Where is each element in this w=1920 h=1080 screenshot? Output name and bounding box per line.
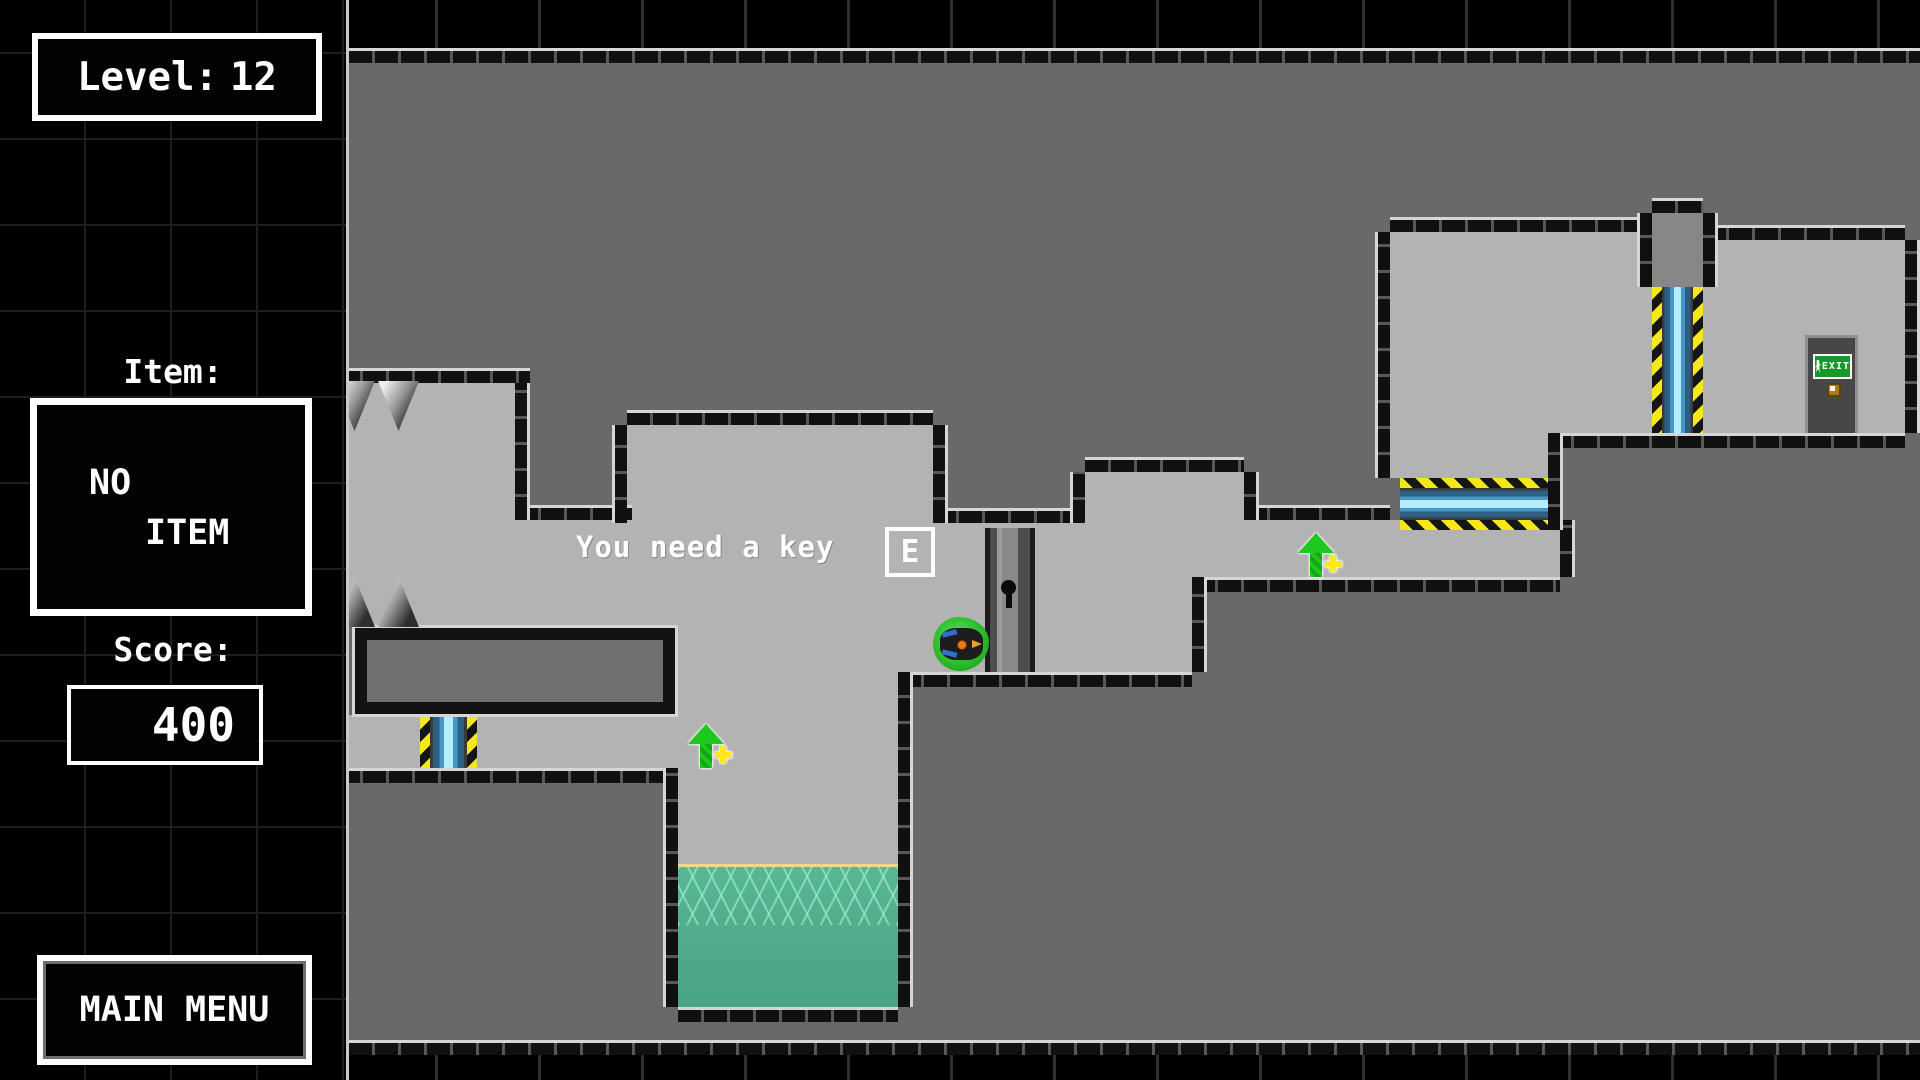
laser-beam: [430, 717, 467, 768]
floor-trim: [1548, 433, 1905, 448]
wall-trim: [1244, 505, 1390, 520]
wall-trim: [1070, 472, 1085, 523]
bottom-frame-rail: [349, 1040, 1920, 1055]
wall-trim: [1652, 198, 1703, 213]
item-box: NO ITEM: [30, 398, 312, 616]
wall-trim: [1905, 240, 1920, 433]
laser-channel: [1652, 213, 1703, 287]
player-detail: [972, 640, 982, 648]
wall-trim: [1637, 213, 1652, 287]
keyhole-icon: [1001, 580, 1016, 595]
game-window: EXIT You need a key E Level: 12 I: [0, 0, 1920, 1080]
wall-trim: [1375, 232, 1390, 478]
item-value-line2: ITEM: [145, 513, 229, 553]
plus-icon: [720, 746, 726, 763]
room-topright-lower: [1390, 433, 1548, 478]
laser-beam: [1400, 488, 1548, 520]
level-label: Level:: [77, 55, 218, 100]
player-sprite: [940, 628, 983, 660]
hazard-stripe-icon: [1693, 287, 1703, 433]
item-value-line1: NO: [89, 463, 131, 503]
laser-barrier-small: [420, 717, 477, 768]
hazard-stripe-icon: [467, 717, 477, 768]
wall-trim: [337, 368, 530, 383]
wall-trim: [1244, 472, 1259, 520]
exit-sign: EXIT: [1813, 354, 1852, 379]
exit-door: EXIT: [1805, 335, 1858, 433]
wall-trim: [898, 672, 913, 1007]
wall-trim: [612, 425, 627, 523]
main-menu-label: MAIN MENU: [80, 990, 270, 1030]
door-handle-icon: [1827, 383, 1841, 397]
room-left: [337, 383, 530, 626]
floor-trim: [1192, 577, 1560, 592]
wall-trim: [1703, 225, 1905, 240]
wall-trim: [933, 508, 1085, 523]
corridor-lower-left: [337, 715, 678, 768]
room-central-upper: [627, 425, 933, 523]
exit-sign-label: EXIT: [1822, 361, 1850, 372]
wall-trim: [663, 768, 678, 1007]
key-prompt-letter: E: [901, 534, 920, 570]
locked-door: [985, 528, 1035, 672]
hazard-stripe-icon: [1652, 287, 1662, 433]
wall-trim: [1703, 213, 1718, 287]
score-value: 400: [152, 698, 235, 752]
score-label: Score:: [0, 630, 346, 669]
sidebar: Level: 12 Item: NO ITEM Score: 400 MAIN …: [0, 0, 349, 1080]
wall-trim: [1192, 577, 1207, 672]
arrow-shaft: [700, 744, 712, 768]
key-prompt: E: [885, 527, 935, 577]
room-exit: [1703, 240, 1905, 433]
score-box: 400: [67, 685, 263, 765]
wall-trim: [627, 410, 933, 425]
top-frame-rail: [349, 48, 1920, 63]
jump-boost-pickup: [688, 724, 724, 768]
wall-trim: [1085, 457, 1244, 472]
bottom-frame-band: [349, 1055, 1920, 1080]
laser-barrier-horizontal: [1400, 478, 1548, 530]
water-pool: [678, 864, 898, 1007]
wall-trim: [1390, 217, 1652, 232]
main-menu-button[interactable]: MAIN MENU: [37, 955, 312, 1065]
hud-message: You need a key: [576, 530, 834, 564]
laser-beam: [1662, 287, 1693, 433]
level-value: 12: [230, 55, 277, 100]
player-detail: [942, 629, 958, 637]
wall-trim: [1548, 433, 1563, 530]
laser-barrier-exit: [1652, 287, 1703, 433]
water-surface-waves: [678, 867, 898, 925]
item-label: Item:: [0, 352, 346, 391]
arrow-up-icon: [688, 724, 724, 744]
top-frame-band: [349, 0, 1920, 48]
alcove: [1085, 472, 1244, 523]
room-topright: [1390, 232, 1652, 433]
arrow-up-icon: [1298, 533, 1334, 553]
jump-boost-pickup: [1298, 533, 1334, 577]
hazard-stripe-icon: [1400, 478, 1548, 488]
floor-trim: [337, 768, 678, 783]
plus-icon: [1330, 555, 1336, 572]
arrow-shaft: [1310, 553, 1322, 577]
floor-trim: [678, 1007, 898, 1022]
player-detail: [942, 649, 958, 657]
wall-trim: [515, 383, 530, 520]
wall-trim: [933, 425, 948, 523]
level-box: Level: 12: [32, 33, 322, 121]
player-detail: [957, 640, 967, 650]
hazard-stripe-icon: [1400, 520, 1548, 530]
floor-trim: [898, 672, 1192, 687]
hazard-stripe-icon: [420, 717, 430, 768]
platform-block: [352, 625, 678, 717]
